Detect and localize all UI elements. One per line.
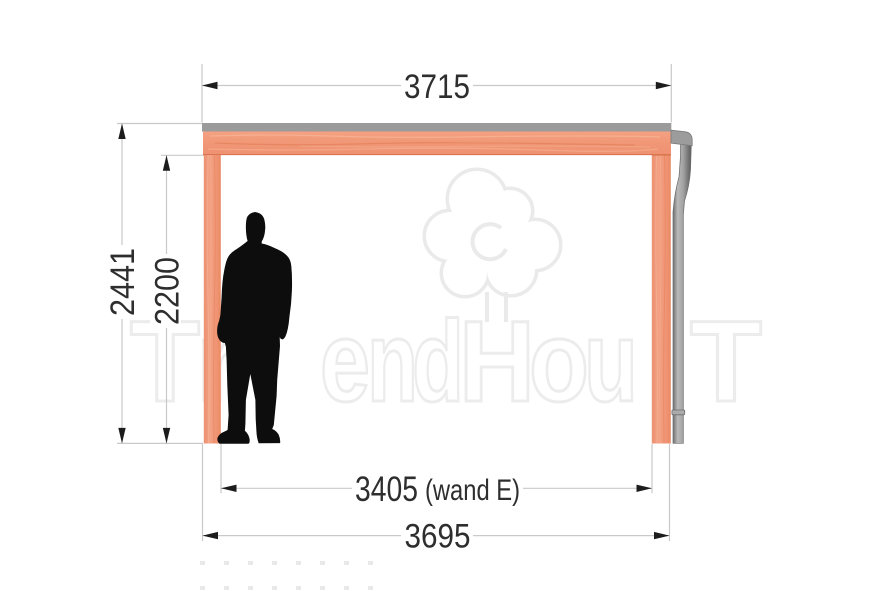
svg-text:3715: 3715 <box>404 68 470 106</box>
svg-text:3695: 3695 <box>405 518 471 556</box>
svg-text:d: d <box>412 298 464 426</box>
svg-text:o: o <box>529 298 589 426</box>
svg-text:(wand E): (wand E) <box>425 474 520 507</box>
svg-text:H: H <box>459 298 535 426</box>
svg-text:3405: 3405 <box>355 470 418 509</box>
svg-text:2200: 2200 <box>149 257 187 325</box>
svg-text:u: u <box>584 298 638 426</box>
svg-text:n: n <box>367 298 418 426</box>
svg-text:e: e <box>320 298 370 426</box>
svg-text:T: T <box>690 298 762 426</box>
svg-text:2441: 2441 <box>104 248 142 316</box>
